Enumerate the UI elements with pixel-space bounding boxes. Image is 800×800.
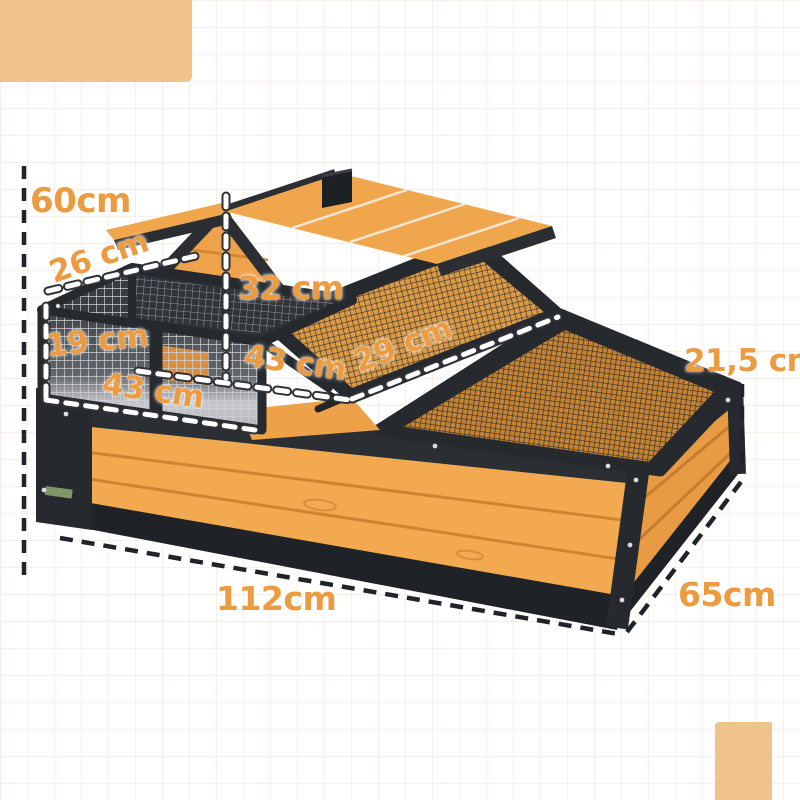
- dimension-label-wall-height: 21,5 cm: [684, 346, 800, 377]
- dimension-label-house-height: 32 cm: [238, 272, 343, 304]
- product-dimension-diagram: 60cm 26 cm 32 cm 19 cm 43 cm 43 cm 29 cm…: [0, 0, 800, 800]
- dimension-label-total-height: 60cm: [30, 184, 131, 218]
- dimension-label-total-length: 112cm: [216, 582, 336, 615]
- chimney-knob: [322, 170, 352, 208]
- dimension-label-total-depth: 65cm: [678, 578, 776, 611]
